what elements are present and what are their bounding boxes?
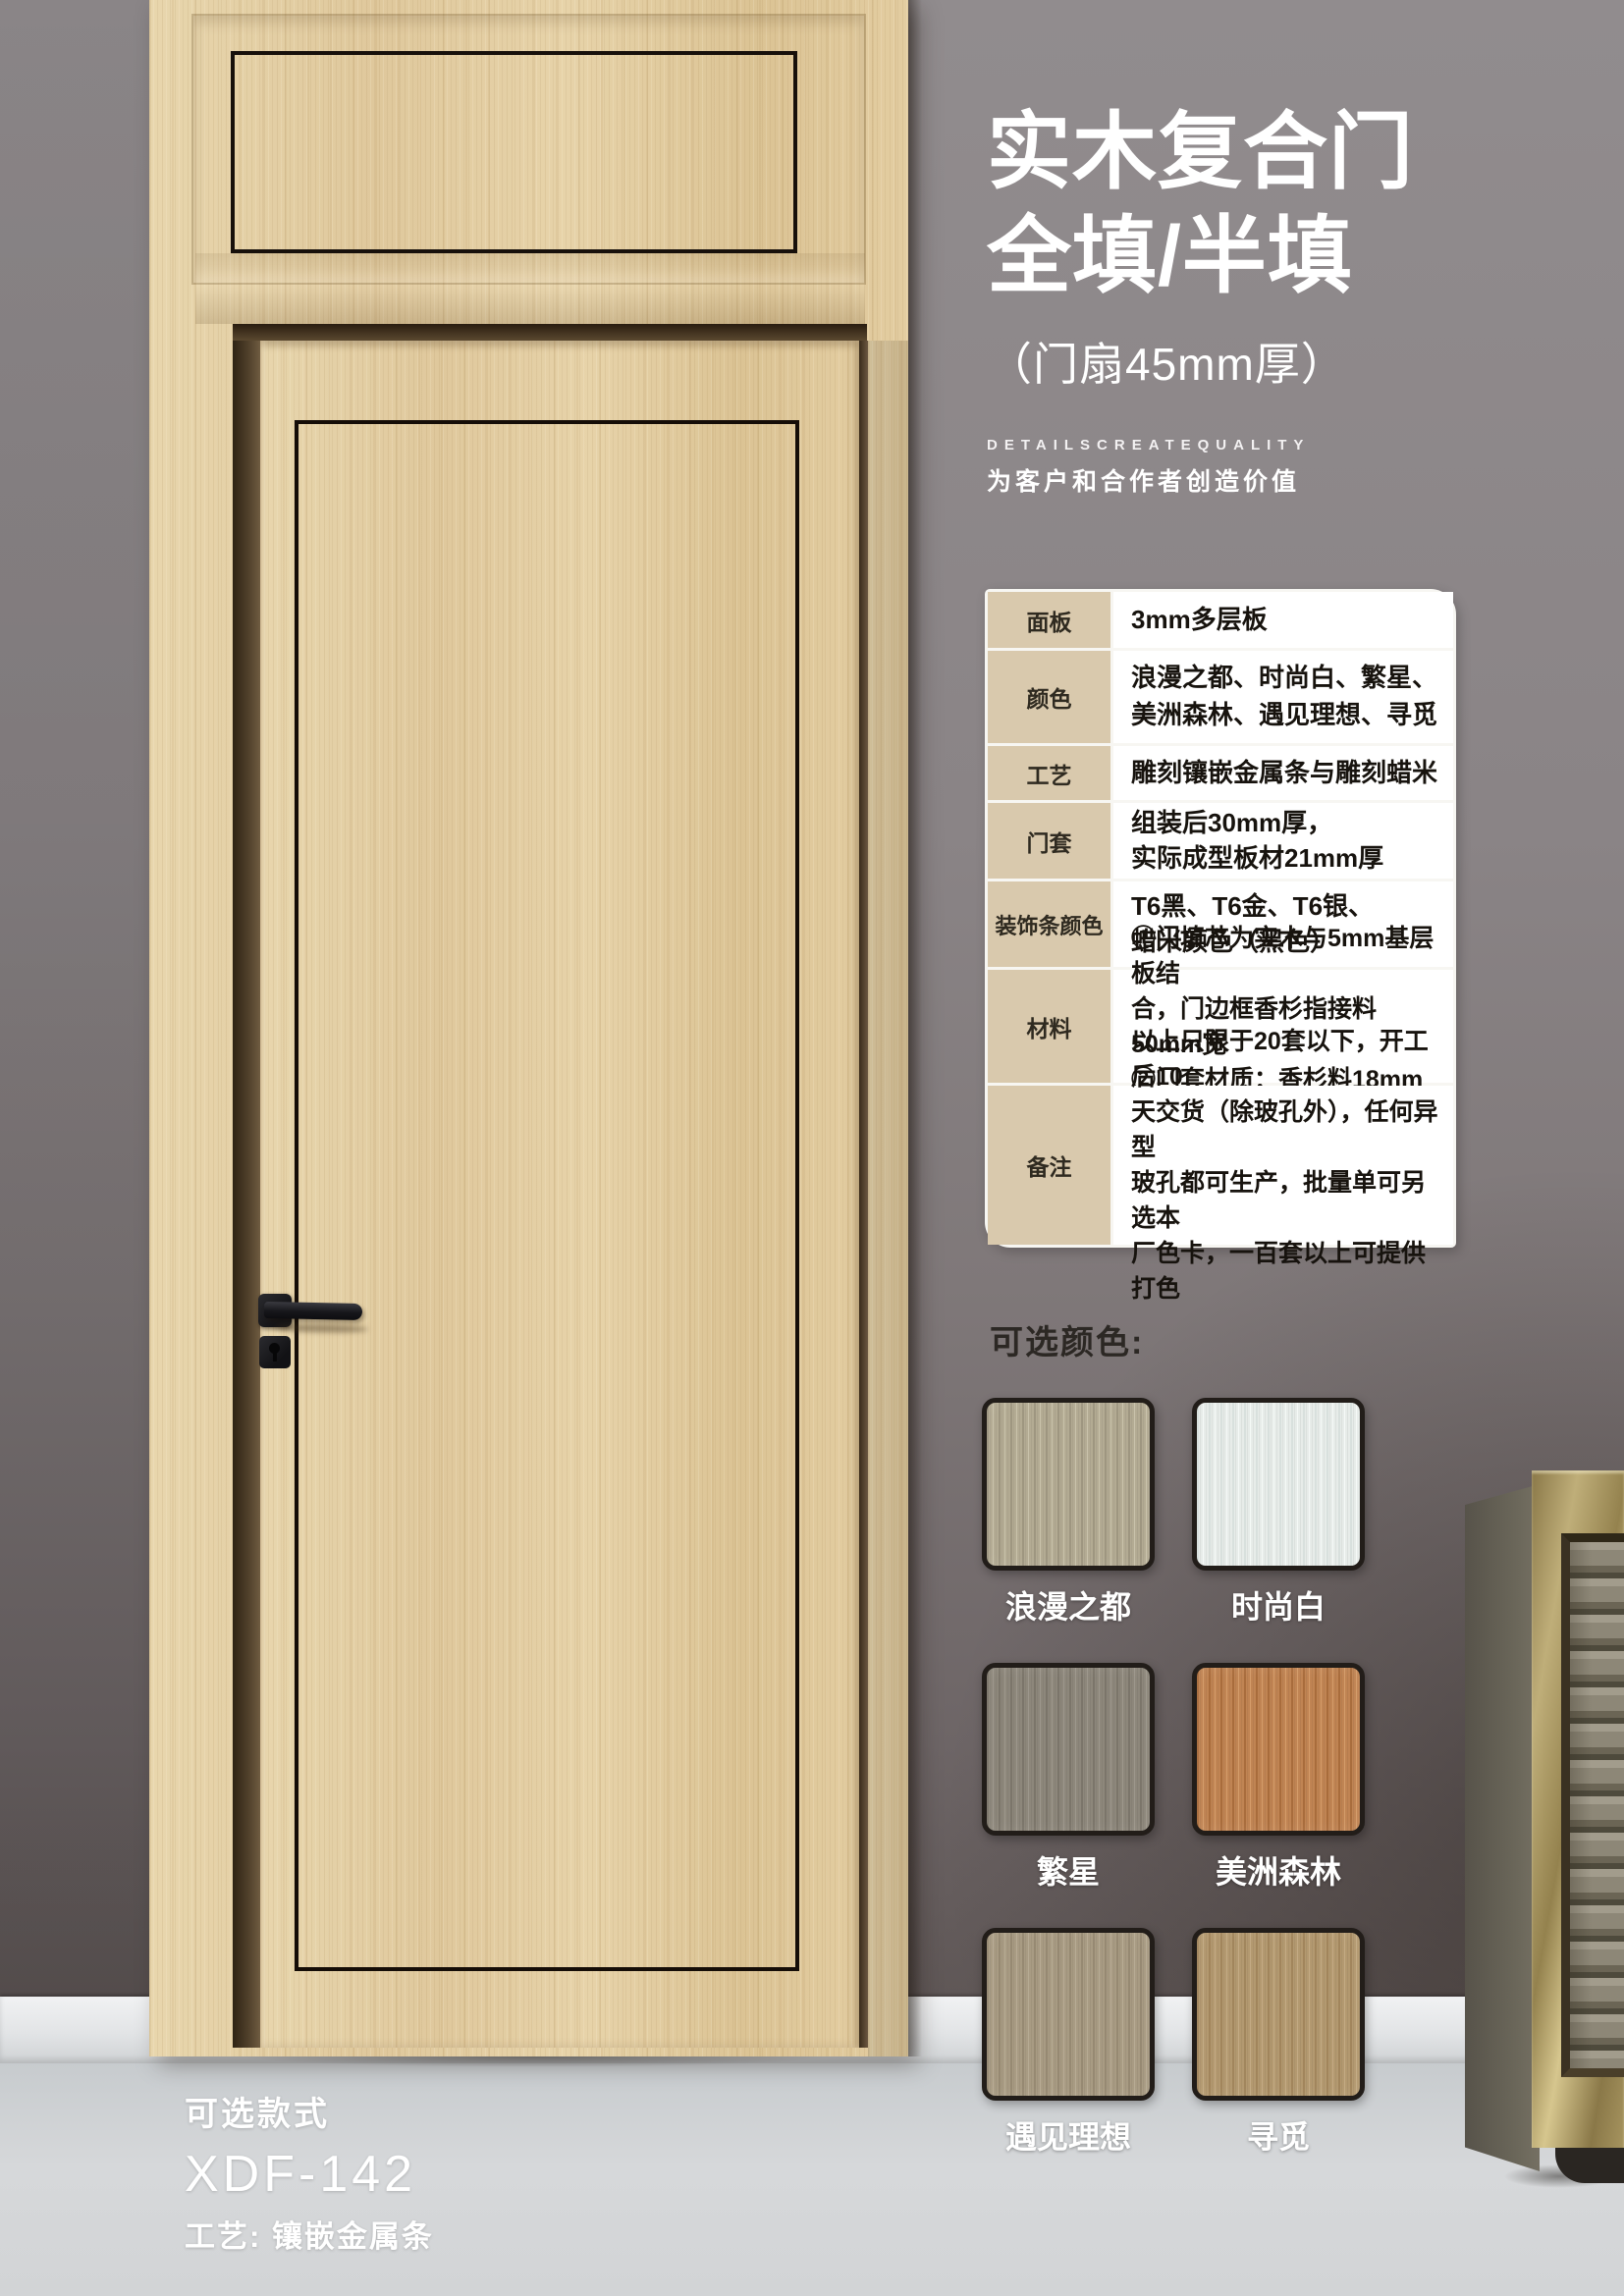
spec-value: 以上只限于20套以下，开工后10 天交货（除玻孔外），任何异型 玻孔都可生产，批… bbox=[1113, 1086, 1453, 1245]
spec-label: 颜色 bbox=[988, 651, 1110, 743]
cabinet-front bbox=[1532, 1470, 1624, 2148]
color-swatch-grid: 浪漫之都 时尚白 繁星 美洲森林 遇见理想 寻觅 bbox=[982, 1398, 1365, 2193]
swatch-tile bbox=[1192, 1928, 1365, 2101]
spec-label: 材料 bbox=[988, 970, 1110, 1083]
door-metal-inlay bbox=[295, 420, 799, 1971]
spec-label: 备注 bbox=[988, 1086, 1110, 1245]
door-right-reveal bbox=[859, 341, 868, 2048]
swatch-tile bbox=[982, 1928, 1155, 2101]
wall-left-shading bbox=[0, 0, 149, 2296]
page-title-line1: 实木复合门 bbox=[987, 101, 1414, 205]
spec-value: 3mm多层板 bbox=[1113, 592, 1453, 648]
door-lock-cylinder bbox=[259, 1336, 291, 1368]
color-swatch: 浪漫之都 bbox=[982, 1398, 1155, 1628]
swatch-tile bbox=[982, 1663, 1155, 1836]
cabinet-drawers bbox=[1561, 1533, 1624, 2077]
craft-note: 工艺: 镶嵌金属条 bbox=[185, 2212, 434, 2256]
spec-label: 面板 bbox=[988, 592, 1110, 648]
door-handle-lever bbox=[264, 1302, 362, 1320]
page-title-line2: 全填/半填 bbox=[987, 205, 1414, 309]
door-left-reveal bbox=[233, 341, 260, 2048]
spec-value: 浪漫之都、时尚白、繁星、 美洲森林、遇见理想、寻觅 bbox=[1113, 651, 1453, 743]
colors-section-heading: 可选颜色: bbox=[990, 1315, 1144, 1363]
spec-label: 装饰条颜色 bbox=[988, 881, 1110, 967]
model-number: XDF-142 bbox=[185, 2145, 434, 2204]
door-head-gap bbox=[233, 324, 867, 341]
table-row: 颜色 浪漫之都、时尚白、繁星、 美洲森林、遇见理想、寻觅 bbox=[988, 651, 1453, 743]
page-subtitle: （门扇45mm厚） bbox=[987, 329, 1414, 394]
swatch-label: 繁星 bbox=[982, 1847, 1155, 1893]
tagline-english: DETAILSCREATEQUALITY bbox=[987, 437, 1414, 454]
style-info-block: 可选款式 XDF-142 工艺: 镶嵌金属条 bbox=[185, 2087, 434, 2256]
swatch-label: 寻觅 bbox=[1192, 2112, 1365, 2158]
spec-value: 组装后30mm厚， 实际成型板材21mm厚 bbox=[1113, 803, 1453, 879]
transom-metal-inlay bbox=[231, 51, 797, 253]
table-row: 工艺 雕刻镶嵌金属条与雕刻蜡米 bbox=[988, 746, 1453, 800]
swatch-label: 遇见理想 bbox=[982, 2112, 1155, 2158]
color-swatch: 时尚白 bbox=[1192, 1398, 1365, 1628]
style-heading: 可选款式 bbox=[185, 2087, 434, 2135]
transom-rail bbox=[195, 253, 865, 324]
cabinet-side-panel bbox=[1465, 1484, 1540, 2171]
door-photo bbox=[149, 0, 908, 2056]
swatch-tile bbox=[1192, 1398, 1365, 1571]
spec-label: 工艺 bbox=[988, 746, 1110, 800]
table-row: 备注 以上只限于20套以下，开工后10 天交货（除玻孔外），任何异型 玻孔都可生… bbox=[988, 1086, 1453, 1245]
color-swatch: 遇见理想 bbox=[982, 1928, 1155, 2158]
swatch-tile bbox=[982, 1398, 1155, 1571]
swatch-label: 时尚白 bbox=[1192, 1582, 1365, 1628]
swatch-tile bbox=[1192, 1663, 1365, 1836]
swatch-label: 美洲森林 bbox=[1192, 1847, 1365, 1893]
table-row: 面板 3mm多层板 bbox=[988, 592, 1453, 648]
color-swatch: 美洲森林 bbox=[1192, 1663, 1365, 1893]
spec-value: 雕刻镶嵌金属条与雕刻蜡米 bbox=[1113, 746, 1453, 800]
color-swatch: 繁星 bbox=[982, 1663, 1155, 1893]
tagline-chinese: 为客户和合作者创造价值 bbox=[987, 462, 1414, 498]
spec-label: 门套 bbox=[988, 803, 1110, 879]
poster-page: 实木复合门 全填/半填 （门扇45mm厚） DETAILSCREATEQUALI… bbox=[0, 0, 1624, 2296]
swatch-label: 浪漫之都 bbox=[982, 1582, 1155, 1628]
color-swatch: 寻觅 bbox=[1192, 1928, 1365, 2158]
title-block: 实木复合门 全填/半填 （门扇45mm厚） DETAILSCREATEQUALI… bbox=[987, 101, 1414, 498]
spec-table: 面板 3mm多层板 颜色 浪漫之都、时尚白、繁星、 美洲森林、遇见理想、寻觅 工… bbox=[985, 589, 1456, 1248]
table-row: 门套 组装后30mm厚， 实际成型板材21mm厚 bbox=[988, 803, 1453, 879]
door-right-jamb bbox=[868, 341, 908, 2056]
